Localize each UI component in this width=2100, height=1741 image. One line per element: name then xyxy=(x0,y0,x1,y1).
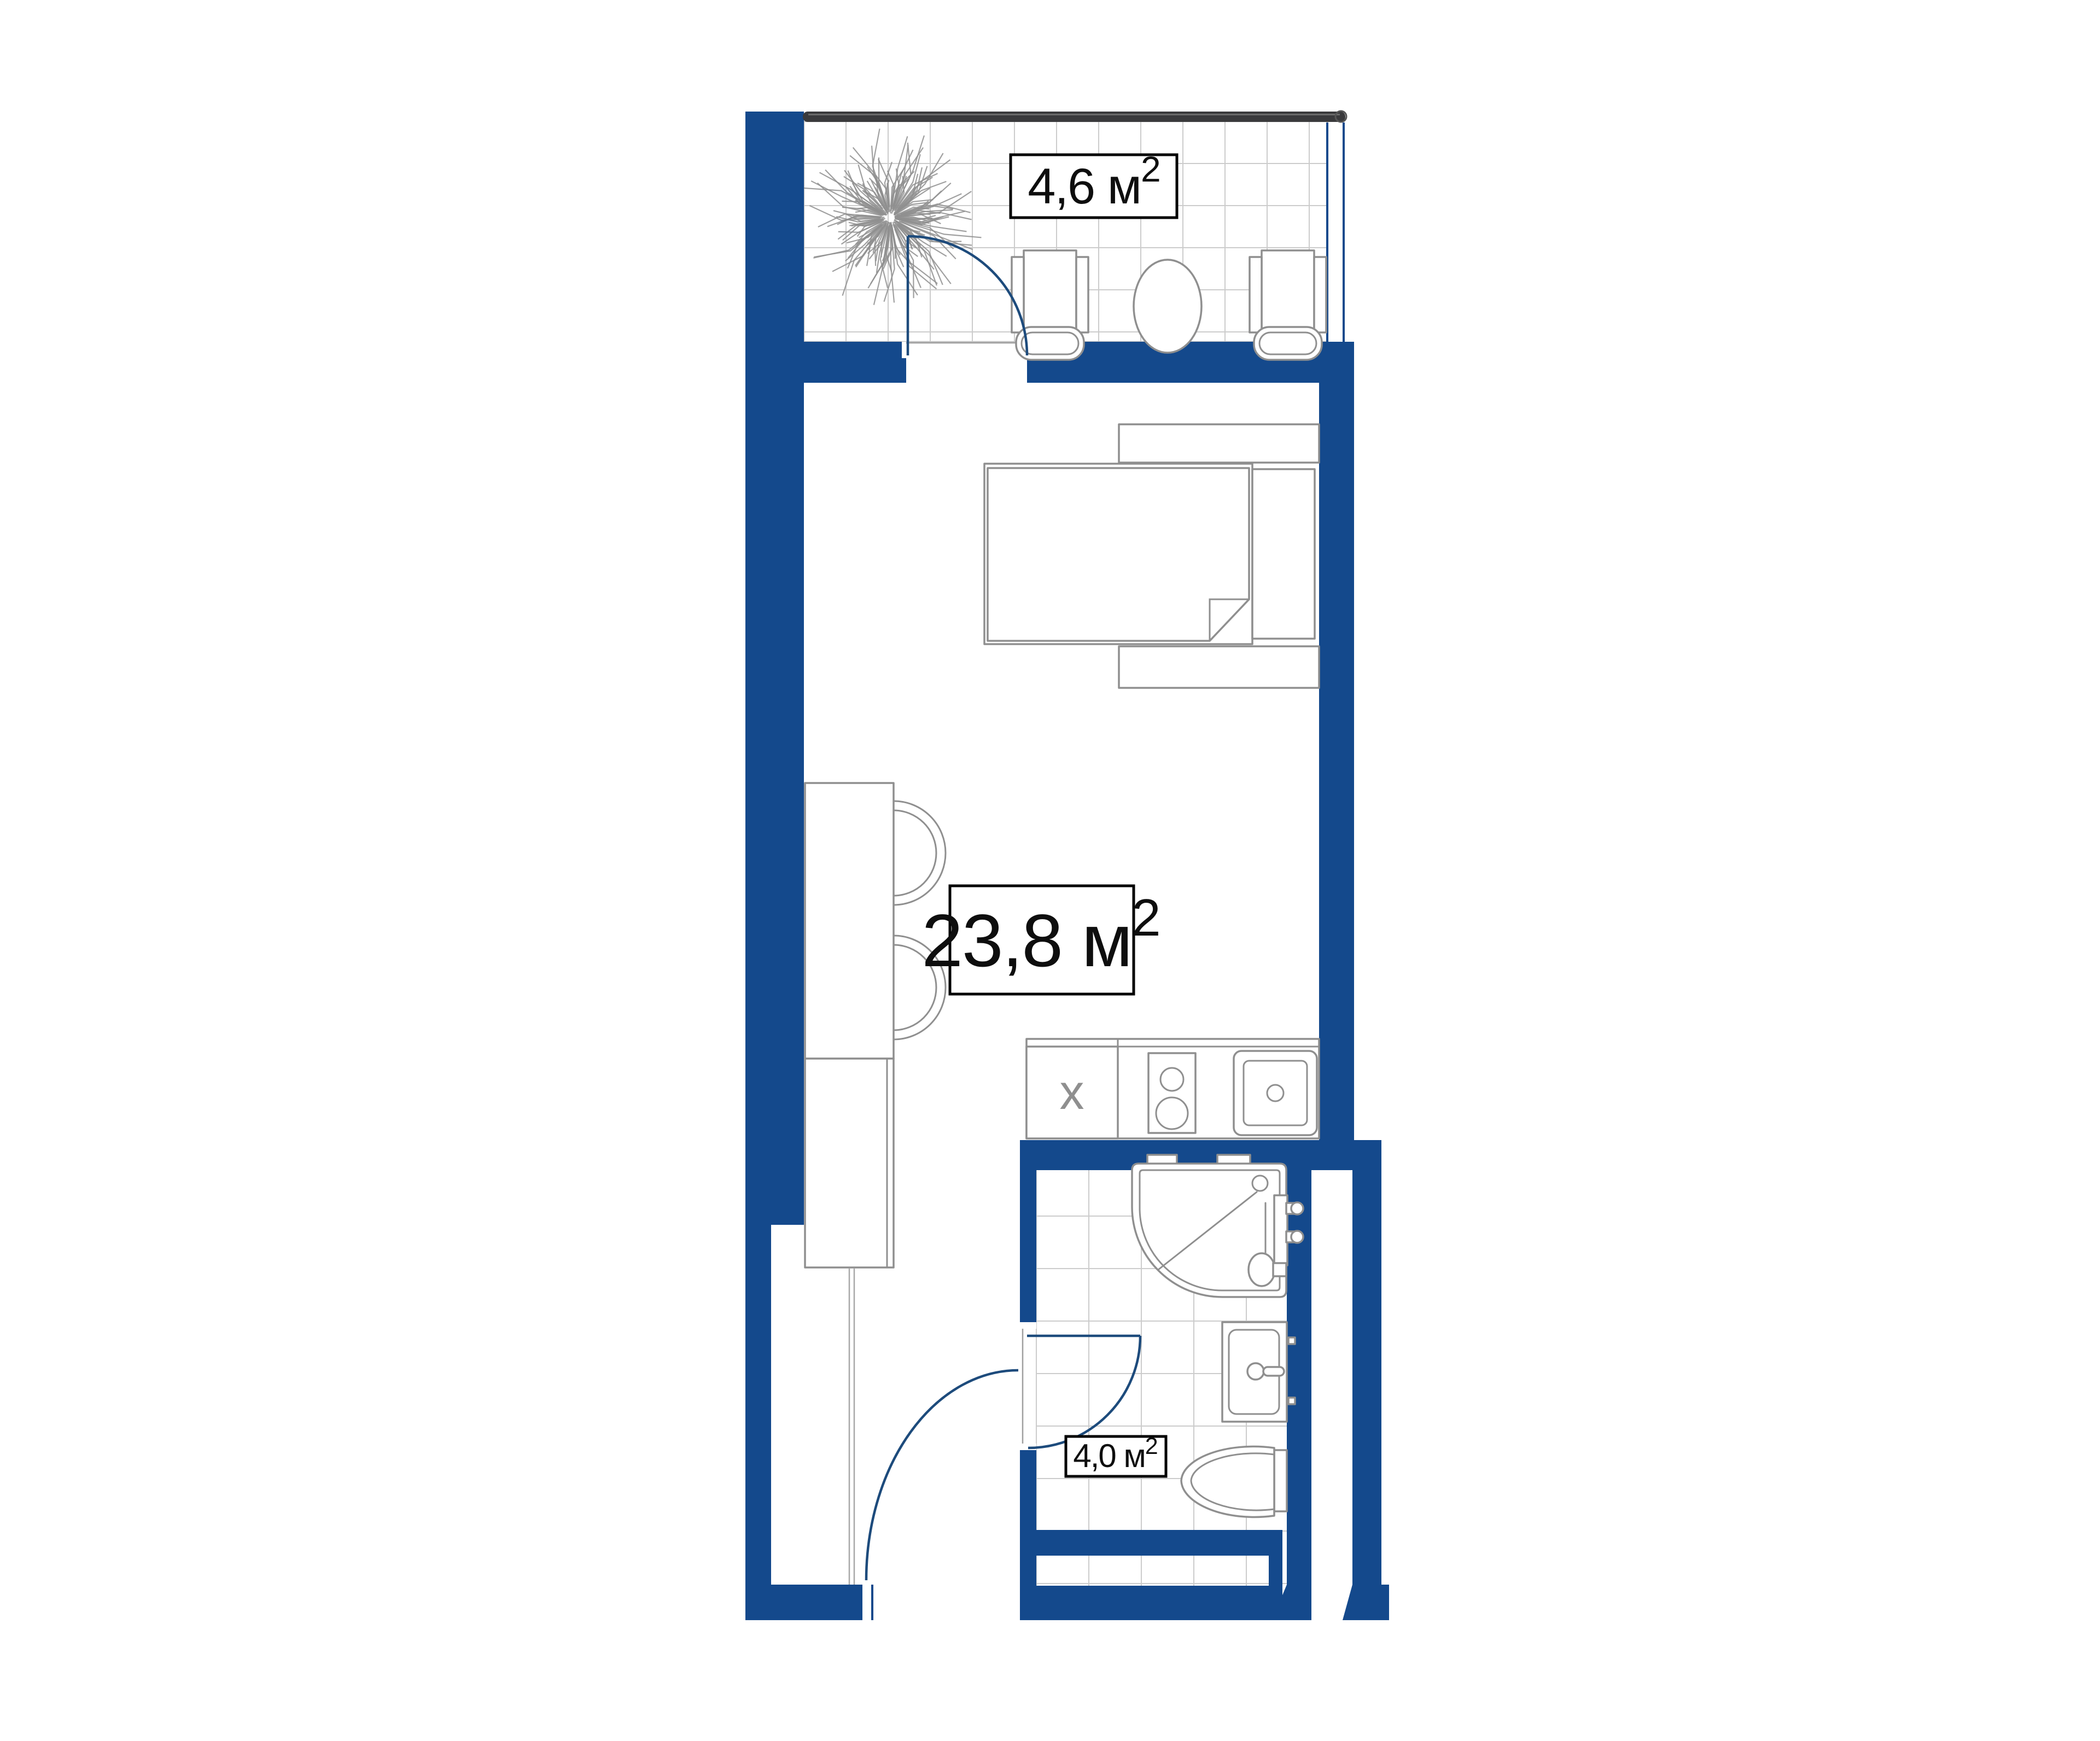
desk-chair-1-inner xyxy=(894,810,936,896)
basin-faucet-lever xyxy=(1263,1367,1284,1376)
balcony-chair-left xyxy=(1012,250,1088,360)
bathroom-door-swing-arc xyxy=(1028,1336,1140,1448)
shower-head xyxy=(1249,1253,1275,1286)
plant-icon xyxy=(803,128,982,305)
toilet xyxy=(1181,1446,1287,1517)
sink-outline xyxy=(1234,1051,1317,1135)
desk-chair-1-outer xyxy=(894,801,946,905)
floor-plan-page: х xyxy=(0,0,2100,1741)
wall-left-foot xyxy=(745,1585,873,1620)
chair-seat xyxy=(1024,250,1076,332)
wall-right-bar-foot xyxy=(1343,1585,1389,1620)
mixer-knob-bottom xyxy=(1291,1231,1303,1243)
wardrobe xyxy=(805,1059,894,1267)
wall-left-lower xyxy=(745,1225,771,1585)
wall-left-upper xyxy=(745,112,804,1225)
chair-seat xyxy=(1262,250,1314,332)
kitchen-counter: х xyxy=(1026,1039,1319,1138)
toilet-tank xyxy=(1274,1450,1287,1511)
balcony-area-label: 4,6 м2 xyxy=(1028,149,1159,214)
rail-highlight xyxy=(808,114,1340,115)
basin-faucet xyxy=(1247,1363,1264,1380)
entrance-door-swing-arc xyxy=(866,1370,1018,1580)
washing-machine-symbol: х xyxy=(1060,1065,1084,1120)
washbasin xyxy=(1222,1322,1295,1422)
balcony-chair-right xyxy=(1250,250,1326,360)
chair-armrest-right xyxy=(1076,257,1088,332)
wall-balcony-bottom-left xyxy=(804,342,906,383)
stove-outline xyxy=(1148,1053,1195,1133)
nightstand-bottom xyxy=(1119,646,1319,688)
nightstand-top xyxy=(1119,424,1319,463)
stove xyxy=(1148,1053,1195,1133)
desk xyxy=(805,783,894,1059)
mixer-knob-top xyxy=(1291,1202,1303,1214)
floor-plan: х xyxy=(0,0,2100,1741)
wall-fitting-bottom xyxy=(1288,1398,1295,1404)
bathroom-area-label: 4,0 м2 xyxy=(1073,1433,1157,1474)
entrance-threshold-slot xyxy=(862,1585,871,1620)
wall-right-main xyxy=(1319,383,1354,1140)
balcony-coffee-table xyxy=(1134,260,1201,353)
living-area-label: 23,8 м2 xyxy=(921,889,1159,982)
wall-bath-bottom-band xyxy=(1020,1586,1282,1620)
wall-bath-bottom-upper-band xyxy=(1036,1530,1282,1556)
chair-armrest-left xyxy=(1250,257,1262,332)
chair-armrest-right xyxy=(1314,257,1326,332)
bath-door-jamb-top xyxy=(1020,1322,1036,1329)
shower xyxy=(1132,1155,1303,1297)
wall-fitting-top xyxy=(1288,1337,1295,1344)
wall-right-bar xyxy=(1352,1170,1381,1585)
bed-headboard xyxy=(1252,469,1315,639)
shower-head-mount xyxy=(1273,1263,1286,1276)
wall-bathroom-left-upper xyxy=(1020,1170,1036,1329)
kitchen-sink xyxy=(1234,1051,1317,1135)
balcony-rail xyxy=(803,111,1346,122)
rail-bar xyxy=(803,112,1345,122)
desk-and-wardrobe xyxy=(805,783,946,1267)
wall-bath-bottom-connector xyxy=(1269,1556,1282,1586)
bed xyxy=(984,424,1319,688)
